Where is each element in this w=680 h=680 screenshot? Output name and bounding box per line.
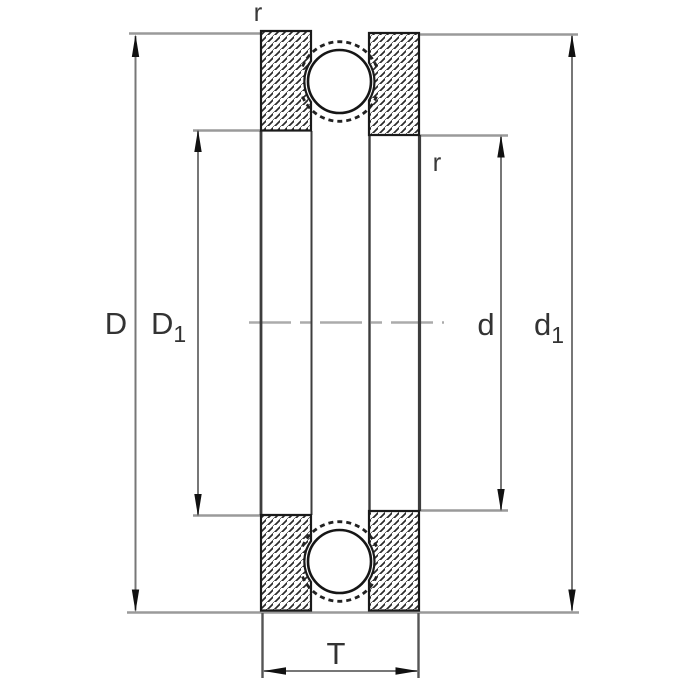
arrowhead-D-top [132,35,139,58]
arrowhead-d-bottom [497,489,504,512]
bottom-half-section [261,511,419,611]
thrust-bearing-cross-section-drawing: D D1 d d1 T r r [0,0,680,680]
shaft-washer-top-section [369,33,419,135]
arrowhead-d-top [497,135,504,158]
arrowhead-T-right [396,667,419,674]
dimension-label-d1-base: d [534,307,551,342]
dimension-label-T: T [327,636,346,671]
dimension-label-d: d [477,307,494,342]
dimension-label-D1-subscript: 1 [173,321,186,347]
dimension-label-d1-subscript: 1 [551,322,564,348]
ball-bottom [308,530,371,593]
dimension-label-d1: d1 [534,307,564,348]
arrowhead-d1-top [568,35,575,58]
dimension-D1 [194,130,201,517]
dimension-D [132,35,139,613]
dimension-d [497,135,504,512]
arrowhead-T-left [264,667,287,674]
arrowhead-d1-bottom [568,590,575,613]
housing-washer-bottom-section [261,515,311,611]
corner-radius-label-inner: r [433,147,442,177]
corner-radius-label-top: r [254,0,263,27]
drawing-canvas: D D1 d d1 T r r [0,0,680,680]
dimension-label-D: D [105,306,127,341]
dimension-label-D1-base: D [151,306,173,341]
dimension-label-D1: D1 [151,306,186,347]
arrowhead-D-bottom [132,590,139,613]
dimension-d1 [568,35,575,613]
shaft-washer-bottom-section [369,511,419,611]
top-half-section [261,31,419,135]
ball-top [308,50,371,113]
arrowhead-D1-bottom [194,494,201,517]
housing-washer-top-section [261,31,311,131]
arrowhead-D1-top [194,130,201,153]
